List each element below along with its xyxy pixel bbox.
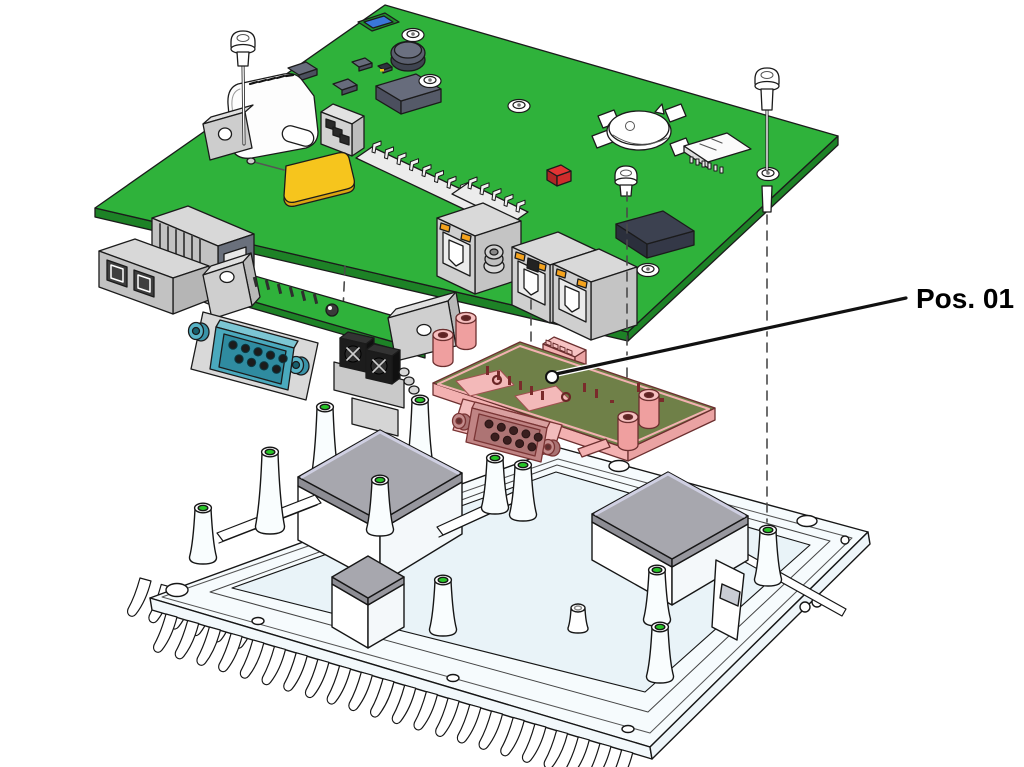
db9-serial-connector <box>189 312 319 400</box>
exploded-view-diagram: Pos. 01 <box>0 0 1024 767</box>
standoff-post <box>255 447 284 534</box>
rj45-jack <box>437 203 521 294</box>
red-component <box>547 165 571 186</box>
pos01-interface-board <box>433 313 715 463</box>
board-hole <box>326 304 338 316</box>
rj45-jack <box>553 249 637 340</box>
standoff-post <box>481 453 508 514</box>
callout-dot <box>546 371 558 383</box>
standoff-post <box>568 604 588 633</box>
coax-connector <box>484 245 504 273</box>
inductor <box>391 42 425 72</box>
pos-label: Pos. 01 <box>916 283 1014 314</box>
standoff-post <box>189 503 216 564</box>
diagram-canvas: Pos. 01 <box>0 0 1024 767</box>
